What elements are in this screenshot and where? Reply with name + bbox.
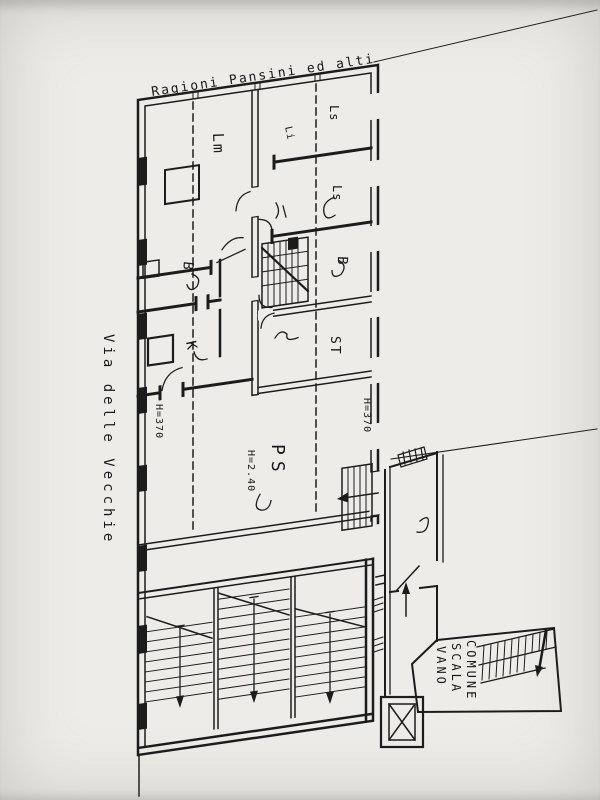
shaft-square-lm bbox=[165, 165, 199, 204]
room-label-ls-mid: Ls bbox=[330, 185, 344, 201]
height-label-ps: H=2.40 bbox=[245, 450, 256, 492]
scanned-floor-plan-page: Ragioni Pansini ed alti Via delle Vecchi… bbox=[0, 0, 600, 800]
property-line-top bbox=[374, 10, 597, 62]
floor-plan-drawing: Ragioni Pansini ed alti Via delle Vecchi… bbox=[0, 0, 600, 800]
room-label-k: K bbox=[182, 340, 200, 354]
annex bbox=[276, 203, 443, 697]
flight-arrow bbox=[250, 596, 258, 695]
annex-wall-hatches bbox=[374, 597, 383, 652]
room-label-b-right: B bbox=[334, 256, 350, 267]
flight-arrow-head bbox=[176, 695, 184, 708]
room-label-lm: Lm bbox=[209, 133, 228, 156]
common-stair-label-3: COMUNE bbox=[464, 640, 478, 701]
double-wall-b2-st bbox=[258, 296, 371, 318]
labels: Ragioni Pansini ed alti Via delle Vecchi… bbox=[100, 52, 478, 702]
stair-block bbox=[140, 559, 373, 740]
stair-flight-right bbox=[296, 599, 365, 709]
internal-stair bbox=[262, 235, 308, 308]
shaft-square-k bbox=[148, 335, 173, 366]
room-label-st: ST bbox=[327, 336, 342, 356]
stair-flight-left bbox=[146, 607, 212, 713]
common-stair-label-2: SCALA bbox=[449, 643, 463, 694]
main-building bbox=[137, 65, 380, 755]
flight-arrow-head bbox=[250, 690, 258, 703]
height-label-right: H=370 bbox=[361, 398, 372, 433]
annex-door-leaf bbox=[397, 566, 419, 590]
room-label-li: Li bbox=[282, 125, 296, 141]
room-label-ls-top: Ls bbox=[327, 105, 341, 121]
room-label-ps: PS bbox=[267, 444, 288, 478]
stair-flight-middle bbox=[219, 583, 289, 708]
double-wall-st-ps bbox=[258, 371, 371, 393]
flight-arrow-head bbox=[326, 691, 334, 704]
flight-arrow bbox=[326, 611, 334, 696]
label-boundary: Ragioni Pansini ed alti bbox=[150, 52, 376, 100]
common-stair-arrow-head bbox=[535, 665, 543, 677]
label-street: Via delle Vecchie bbox=[100, 334, 116, 545]
height-label-left: H=370 bbox=[153, 404, 164, 439]
room-label-b-left: B bbox=[179, 261, 196, 273]
center-spine-wall bbox=[252, 89, 258, 395]
door-gap bbox=[250, 186, 260, 217]
annex-neck-walls bbox=[376, 575, 385, 585]
common-stair-label-1: VANO bbox=[434, 646, 448, 687]
